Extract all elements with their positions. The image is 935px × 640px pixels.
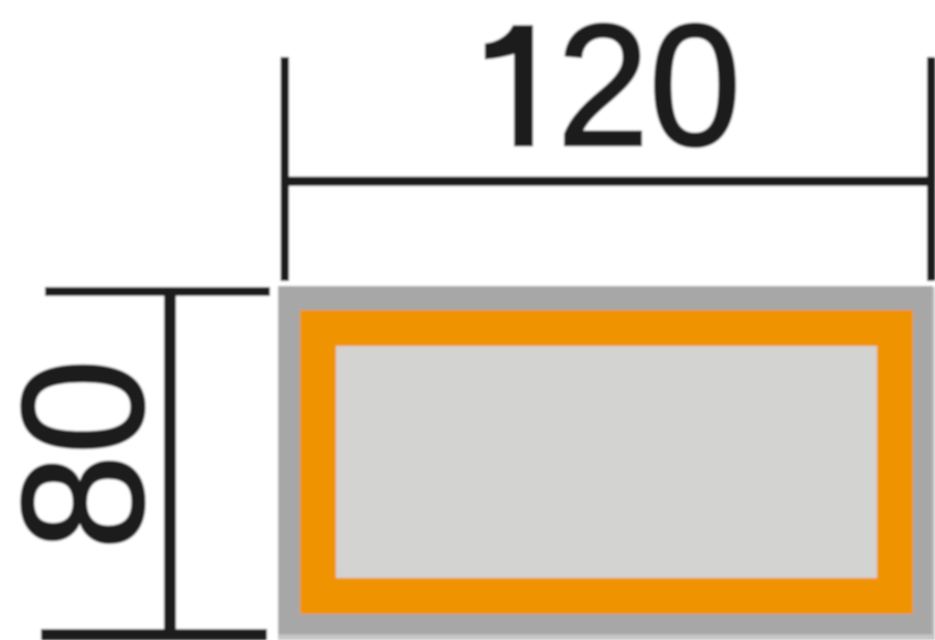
svg-text:80: 80 [0, 359, 180, 550]
svg-text:20: 20 [557, 0, 741, 182]
